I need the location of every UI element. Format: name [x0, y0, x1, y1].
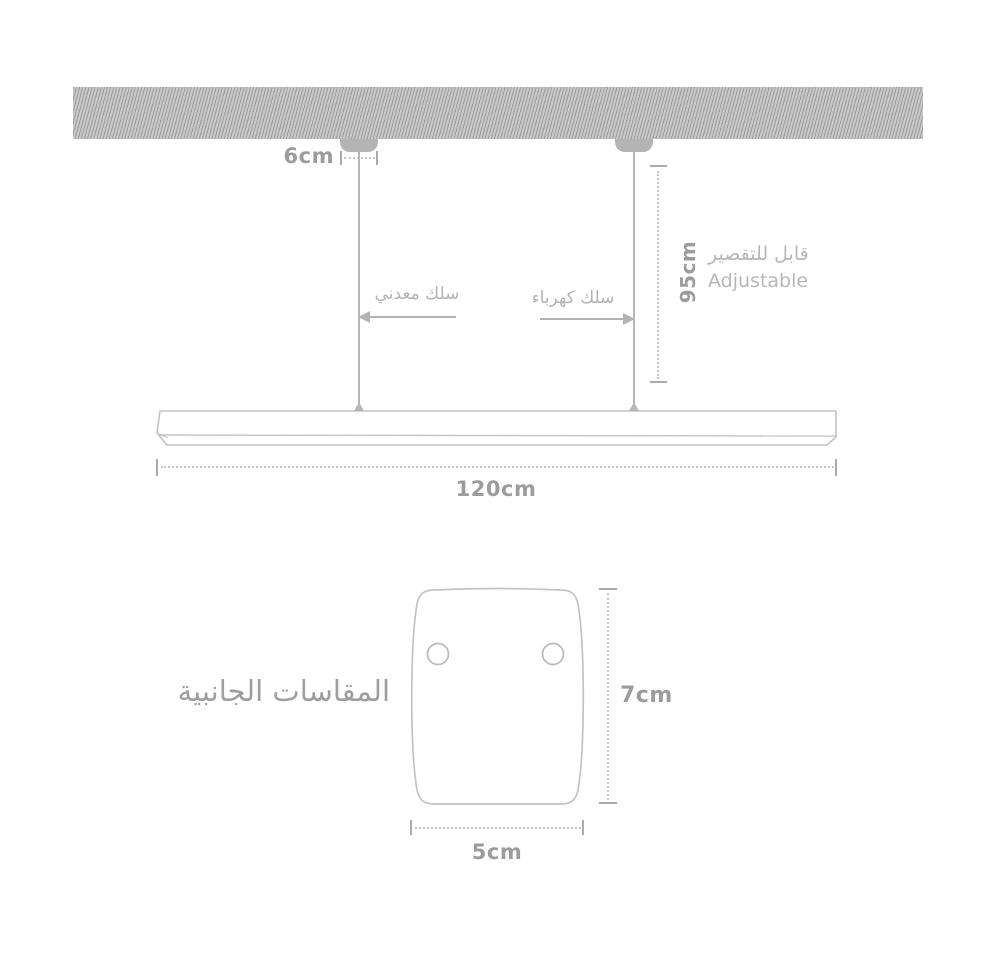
dim-6cm-line	[344, 157, 375, 159]
dim-5cm-label: 5cm	[437, 840, 557, 864]
metal-wire-arrow-line	[369, 316, 456, 318]
adjustable-note: قابل للتقصير Adjustable	[708, 241, 878, 295]
suspension-wire-left	[358, 152, 360, 411]
ceiling-hatch-band	[73, 87, 923, 139]
dimension-diagram: 6cm 95cm قابل للتقصير Adjustable سلك معد…	[0, 0, 1000, 965]
arrow-right-icon	[623, 313, 635, 325]
dim-120cm-tick-right	[835, 459, 837, 476]
dim-7cm-label: 7cm	[620, 683, 690, 708]
dim-6cm-label: 6cm	[258, 144, 334, 168]
fixture-bar	[150, 398, 845, 450]
dim-5cm-line	[415, 827, 581, 829]
dim-95cm-tick-top	[650, 165, 667, 167]
adjustable-label-ar: قابل للتقصير	[708, 241, 878, 268]
dim-5cm-tick-left	[410, 820, 412, 835]
dim-6cm-tick-right	[376, 151, 378, 165]
dim-7cm-line	[607, 593, 609, 800]
metal-wire-label: سلك معدني	[366, 284, 468, 304]
canopy-mount-left	[340, 139, 378, 152]
dim-7cm-tick-bottom	[599, 802, 617, 804]
dim-120cm-tick-left	[156, 459, 158, 476]
electric-wire-label: سلك كهرباء	[520, 288, 626, 308]
side-view-title: المقاسات الجانبية	[140, 674, 390, 708]
arrow-left-icon	[358, 311, 370, 323]
dim-95cm-label: 95cm	[676, 232, 698, 312]
wire-grommet-right	[629, 402, 639, 411]
side-profile	[400, 583, 600, 813]
dim-120cm-label: 120cm	[421, 477, 571, 501]
suspension-wire-right	[633, 152, 635, 411]
wire-grommet-left	[354, 402, 364, 411]
dim-95cm-line	[657, 171, 659, 379]
dim-120cm-line	[161, 466, 834, 468]
dim-6cm-tick-left	[340, 151, 342, 165]
adjustable-label-en: Adjustable	[708, 268, 878, 295]
canopy-mount-right	[615, 139, 653, 152]
electric-wire-arrow-line	[540, 318, 625, 320]
dim-7cm-tick-top	[599, 588, 617, 590]
dim-95cm-tick-bottom	[650, 381, 667, 383]
dim-5cm-tick-right	[582, 820, 584, 835]
